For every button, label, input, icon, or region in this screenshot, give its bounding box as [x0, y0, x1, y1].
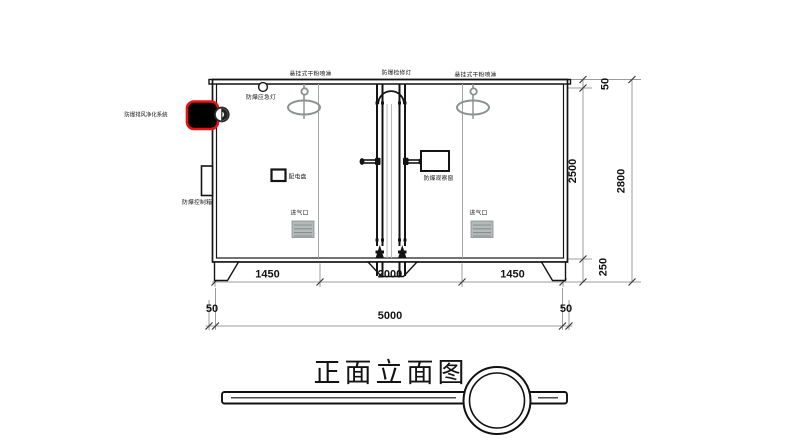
air-inlet-left-label: 进气口 [291, 209, 309, 217]
air-inlet-right-icon [471, 221, 493, 238]
drawing-title: 正面立面图 [314, 358, 469, 388]
sprinkler-left-icon [288, 84, 320, 119]
exhaust-unit-highlight-box [187, 102, 218, 130]
underline-ring-outer [464, 367, 531, 434]
observation-window-label: 防爆观察窗 [424, 174, 454, 182]
air-inlet-left-icon [292, 221, 314, 238]
dim-bottom-offset-right: 50 [560, 303, 572, 315]
control-box-label: 防爆控制箱 [182, 198, 212, 206]
dim-side-base: 250 [598, 258, 610, 276]
sprinkler-right-icon [457, 84, 489, 119]
distribution-panel-icon [272, 170, 286, 182]
exhaust-purification-label: 防爆排风净化系统 [124, 111, 168, 119]
maintenance-light-label: 防爆检修灯 [382, 69, 412, 77]
dim-side-roof: 50 [600, 78, 612, 90]
container-body [209, 80, 571, 263]
emergency-light-icon [259, 83, 268, 92]
air-inlet-right-label: 进气口 [470, 209, 488, 217]
dimension-lines [206, 80, 642, 331]
sprinkler-right-label: 悬挂式干粉喷淋 [455, 71, 497, 79]
dim-bottom-center-span: 2000 [378, 269, 402, 281]
dimension-ticks [206, 76, 636, 330]
dim-side-total: 2800 [616, 169, 628, 193]
left-foot [215, 262, 239, 281]
inner-shell [217, 84, 564, 258]
dim-bottom-offset-left: 50 [206, 303, 218, 315]
elevation-drawing-page: 悬挂式干粉喷淋 防爆检修灯 悬挂式干粉喷淋 防爆应急灯 防爆排风净化系统 防爆控… [0, 0, 800, 445]
dim-bottom-right-span: 1450 [500, 269, 524, 281]
dimension-texts: 1450 2000 1450 50 5000 50 50 2500 250 28… [206, 78, 628, 322]
right-foot [542, 262, 566, 281]
dim-bottom-total: 5000 [378, 310, 402, 322]
control-box-icon [202, 166, 213, 196]
observation-window-icon [421, 151, 449, 171]
emergency-light-label: 防爆应急灯 [246, 93, 276, 101]
dim-bottom-left-span: 1450 [255, 269, 279, 281]
exhaust-purification-unit [187, 102, 229, 130]
sprinkler-left-label: 悬挂式干粉喷淋 [290, 70, 332, 78]
distribution-panel-label: 配电盘 [289, 173, 307, 181]
elevation-drawing: 悬挂式干粉喷淋 防爆检修灯 悬挂式干粉喷淋 防爆应急灯 防爆排风净化系统 防爆控… [0, 0, 800, 445]
outer-shell [213, 80, 568, 263]
dim-side-body: 2500 [567, 159, 579, 183]
